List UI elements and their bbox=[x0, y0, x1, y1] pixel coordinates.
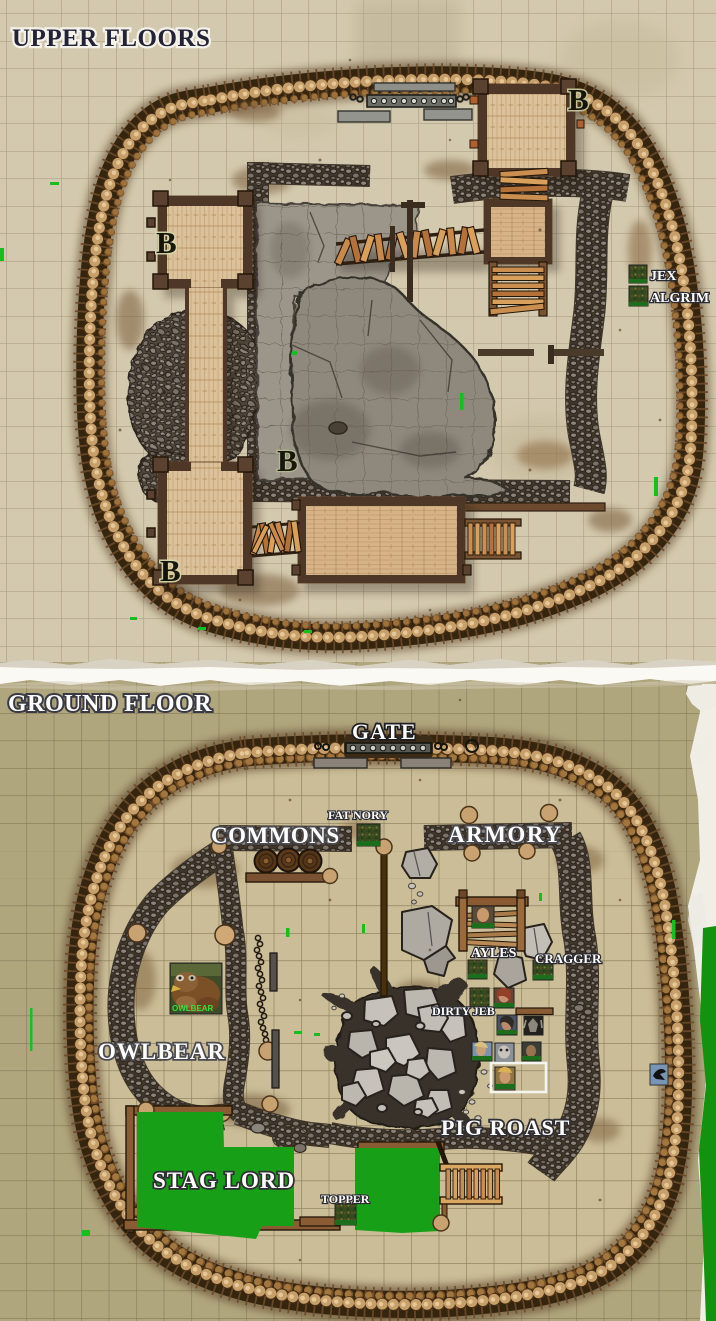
svg-text:CRAGGER: CRAGGER bbox=[535, 951, 602, 966]
svg-text:GATE: GATE bbox=[352, 719, 417, 744]
svg-text:JEX: JEX bbox=[650, 269, 676, 284]
svg-text:ALGRIM: ALGRIM bbox=[650, 291, 709, 306]
svg-text:GROUND FLOOR: GROUND FLOOR bbox=[8, 691, 212, 717]
svg-text:COMMONS: COMMONS bbox=[211, 823, 340, 848]
svg-text:AYLES: AYLES bbox=[471, 946, 517, 961]
svg-text:UPPER FLOORS: UPPER FLOORS bbox=[12, 25, 210, 52]
svg-text:B: B bbox=[156, 225, 177, 260]
svg-text:PIG ROAST: PIG ROAST bbox=[441, 1115, 570, 1140]
svg-text:STAG LORD: STAG LORD bbox=[153, 1168, 295, 1193]
svg-text:B: B bbox=[277, 443, 298, 478]
svg-text:TOPPER: TOPPER bbox=[321, 1192, 370, 1206]
svg-text:DIRTY JEB: DIRTY JEB bbox=[432, 1004, 495, 1018]
svg-text:OWLBEAR: OWLBEAR bbox=[98, 1039, 225, 1064]
svg-text:OWLBEAR: OWLBEAR bbox=[172, 1004, 214, 1013]
svg-text:B: B bbox=[568, 82, 589, 117]
svg-text:B: B bbox=[160, 553, 181, 588]
svg-text:ARMORY: ARMORY bbox=[448, 822, 562, 847]
svg-text:FAT NORY: FAT NORY bbox=[328, 808, 388, 822]
